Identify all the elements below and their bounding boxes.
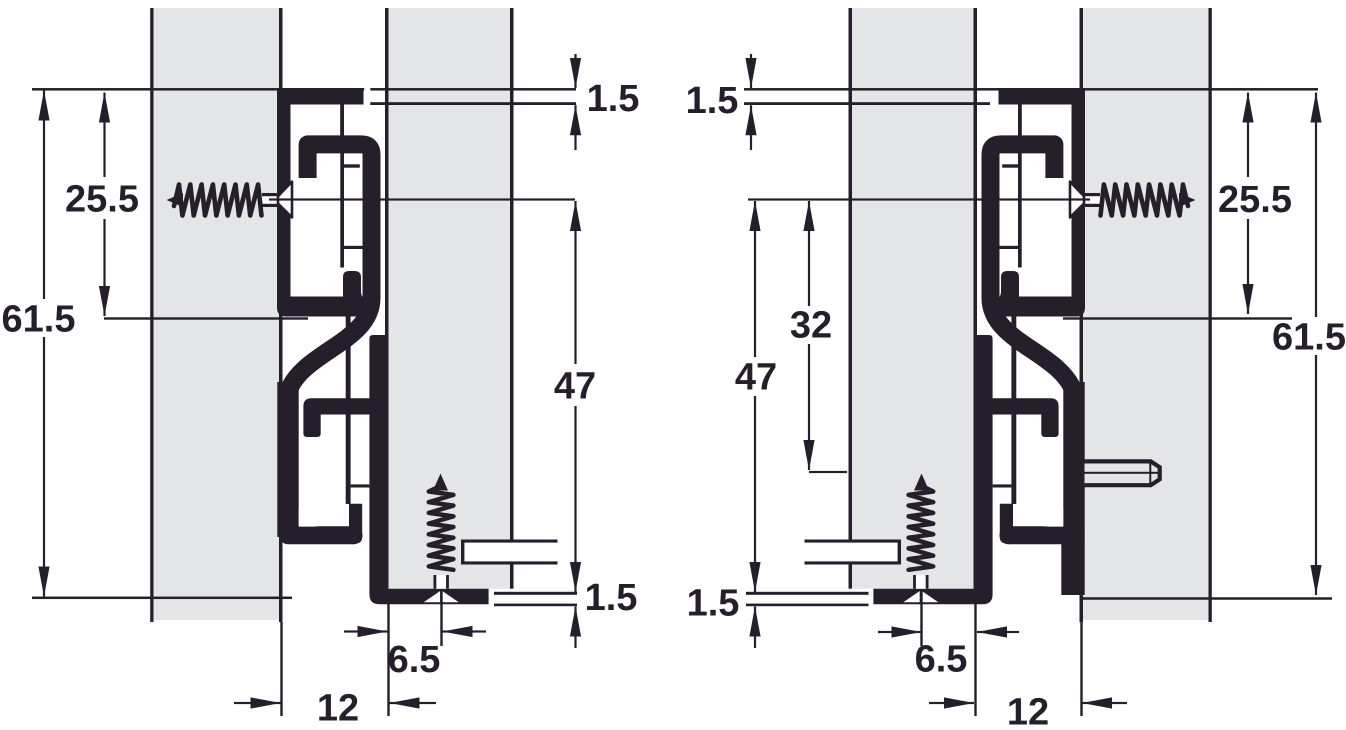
svg-text:47: 47	[554, 366, 596, 408]
svg-text:1.5: 1.5	[585, 577, 638, 619]
svg-text:1.5: 1.5	[686, 80, 739, 122]
svg-text:25.5: 25.5	[65, 179, 139, 221]
svg-text:12: 12	[317, 688, 359, 730]
svg-text:32: 32	[790, 305, 832, 347]
svg-text:12: 12	[1007, 692, 1049, 730]
svg-text:61.5: 61.5	[2, 299, 76, 341]
svg-text:6.5: 6.5	[388, 639, 441, 681]
svg-text:61.5: 61.5	[1272, 317, 1346, 359]
svg-text:25.5: 25.5	[1218, 179, 1292, 221]
svg-text:6.5: 6.5	[915, 639, 968, 681]
svg-text:1.5: 1.5	[687, 583, 740, 625]
svg-text:1.5: 1.5	[587, 78, 640, 120]
svg-text:47: 47	[735, 357, 777, 399]
